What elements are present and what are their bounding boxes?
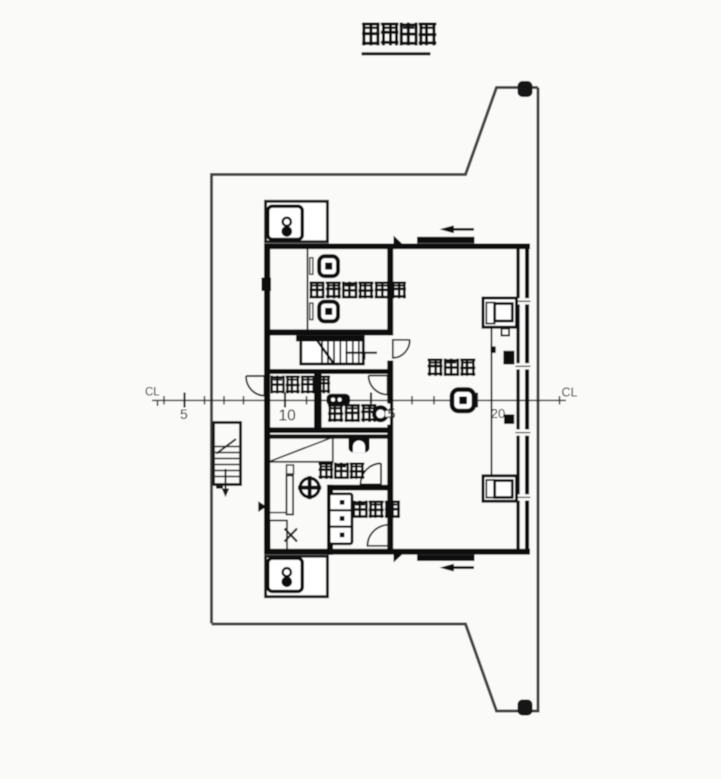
- svg-text:20: 20: [491, 406, 505, 421]
- svg-text:CL: CL: [145, 387, 160, 399]
- svg-text:10: 10: [279, 408, 297, 425]
- svg-text:5: 5: [388, 407, 396, 423]
- svg-text:CL: CL: [562, 386, 578, 400]
- svg-text:5: 5: [180, 406, 188, 422]
